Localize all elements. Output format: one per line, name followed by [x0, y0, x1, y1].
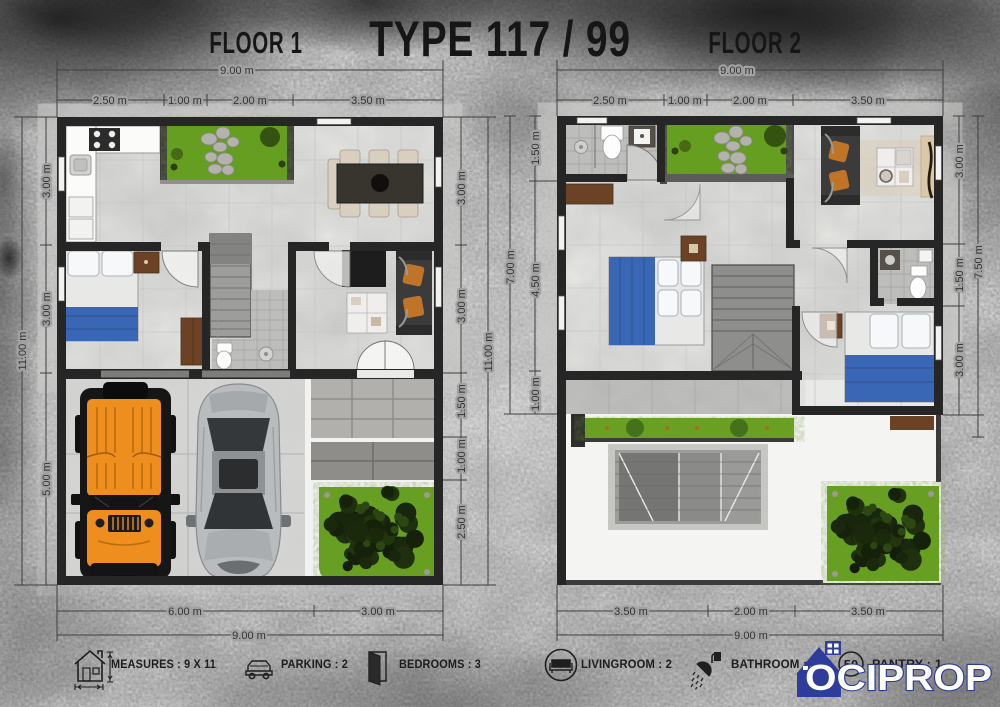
svg-text:LIVINGROOM : 2: LIVINGROOM : 2 — [581, 657, 672, 671]
svg-text:1.50 m: 1.50 m — [530, 131, 542, 165]
svg-text:3.00 m: 3.00 m — [954, 343, 966, 377]
svg-text:2.50 m: 2.50 m — [593, 95, 627, 107]
svg-text:3.00 m: 3.00 m — [361, 606, 395, 618]
svg-text:FLOOR 1: FLOOR 1 — [209, 25, 302, 60]
svg-text:2.00 m: 2.00 m — [233, 95, 267, 107]
svg-text:3.00 m: 3.00 m — [456, 171, 468, 205]
svg-text:BEDROOMS : 3: BEDROOMS : 3 — [399, 657, 481, 671]
svg-text:4.50 m: 4.50 m — [530, 263, 542, 297]
svg-text:2.50 m: 2.50 m — [456, 505, 468, 539]
svg-text:1.00 m: 1.00 m — [168, 95, 202, 107]
svg-text:1.00 m: 1.00 m — [530, 377, 542, 411]
svg-text:PARKING : 2: PARKING : 2 — [281, 657, 348, 671]
svg-text:3.00 m: 3.00 m — [954, 144, 966, 178]
svg-text:TYPE 117 / 99: TYPE 117 / 99 — [369, 10, 631, 67]
svg-text:9.00 m: 9.00 m — [734, 630, 768, 642]
svg-text:3.00 m: 3.00 m — [456, 289, 468, 323]
svg-text:2.00 m: 2.00 m — [733, 95, 767, 107]
svg-text:1.00 m: 1.00 m — [668, 95, 702, 107]
svg-text:7.50 m: 7.50 m — [973, 245, 985, 279]
svg-text:3.50 m: 3.50 m — [851, 606, 885, 618]
svg-text:MEASURES : 9 X 11: MEASURES : 9 X 11 — [111, 657, 216, 671]
svg-text:3.50 m: 3.50 m — [614, 606, 648, 618]
svg-text:3.50 m: 3.50 m — [351, 95, 385, 107]
svg-text:3.00 m: 3.00 m — [41, 164, 53, 198]
svg-text:1.50 m: 1.50 m — [456, 384, 468, 418]
svg-text:1.50 m: 1.50 m — [954, 258, 966, 292]
svg-text:2.00 m: 2.00 m — [734, 606, 768, 618]
svg-text:2.50 m: 2.50 m — [93, 95, 127, 107]
svg-text:1.00 m: 1.00 m — [456, 439, 468, 473]
svg-text:9.00 m: 9.00 m — [232, 630, 266, 642]
svg-text:FLOOR 2: FLOOR 2 — [708, 25, 801, 60]
svg-text:5.00 m: 5.00 m — [41, 462, 53, 496]
svg-text:9.00 m: 9.00 m — [220, 65, 254, 77]
svg-text:6.00 m: 6.00 m — [168, 606, 202, 618]
svg-text:11.00 m: 11.00 m — [483, 333, 495, 372]
svg-text:9.00 m: 9.00 m — [720, 65, 754, 77]
svg-text:7.00 m: 7.00 m — [505, 250, 517, 284]
svg-text:3.50 m: 3.50 m — [851, 95, 885, 107]
svg-text:11.00 m: 11.00 m — [17, 332, 29, 371]
svg-text:3.00 m: 3.00 m — [41, 292, 53, 326]
svg-text:OCIPROP: OCIPROP — [805, 657, 992, 698]
